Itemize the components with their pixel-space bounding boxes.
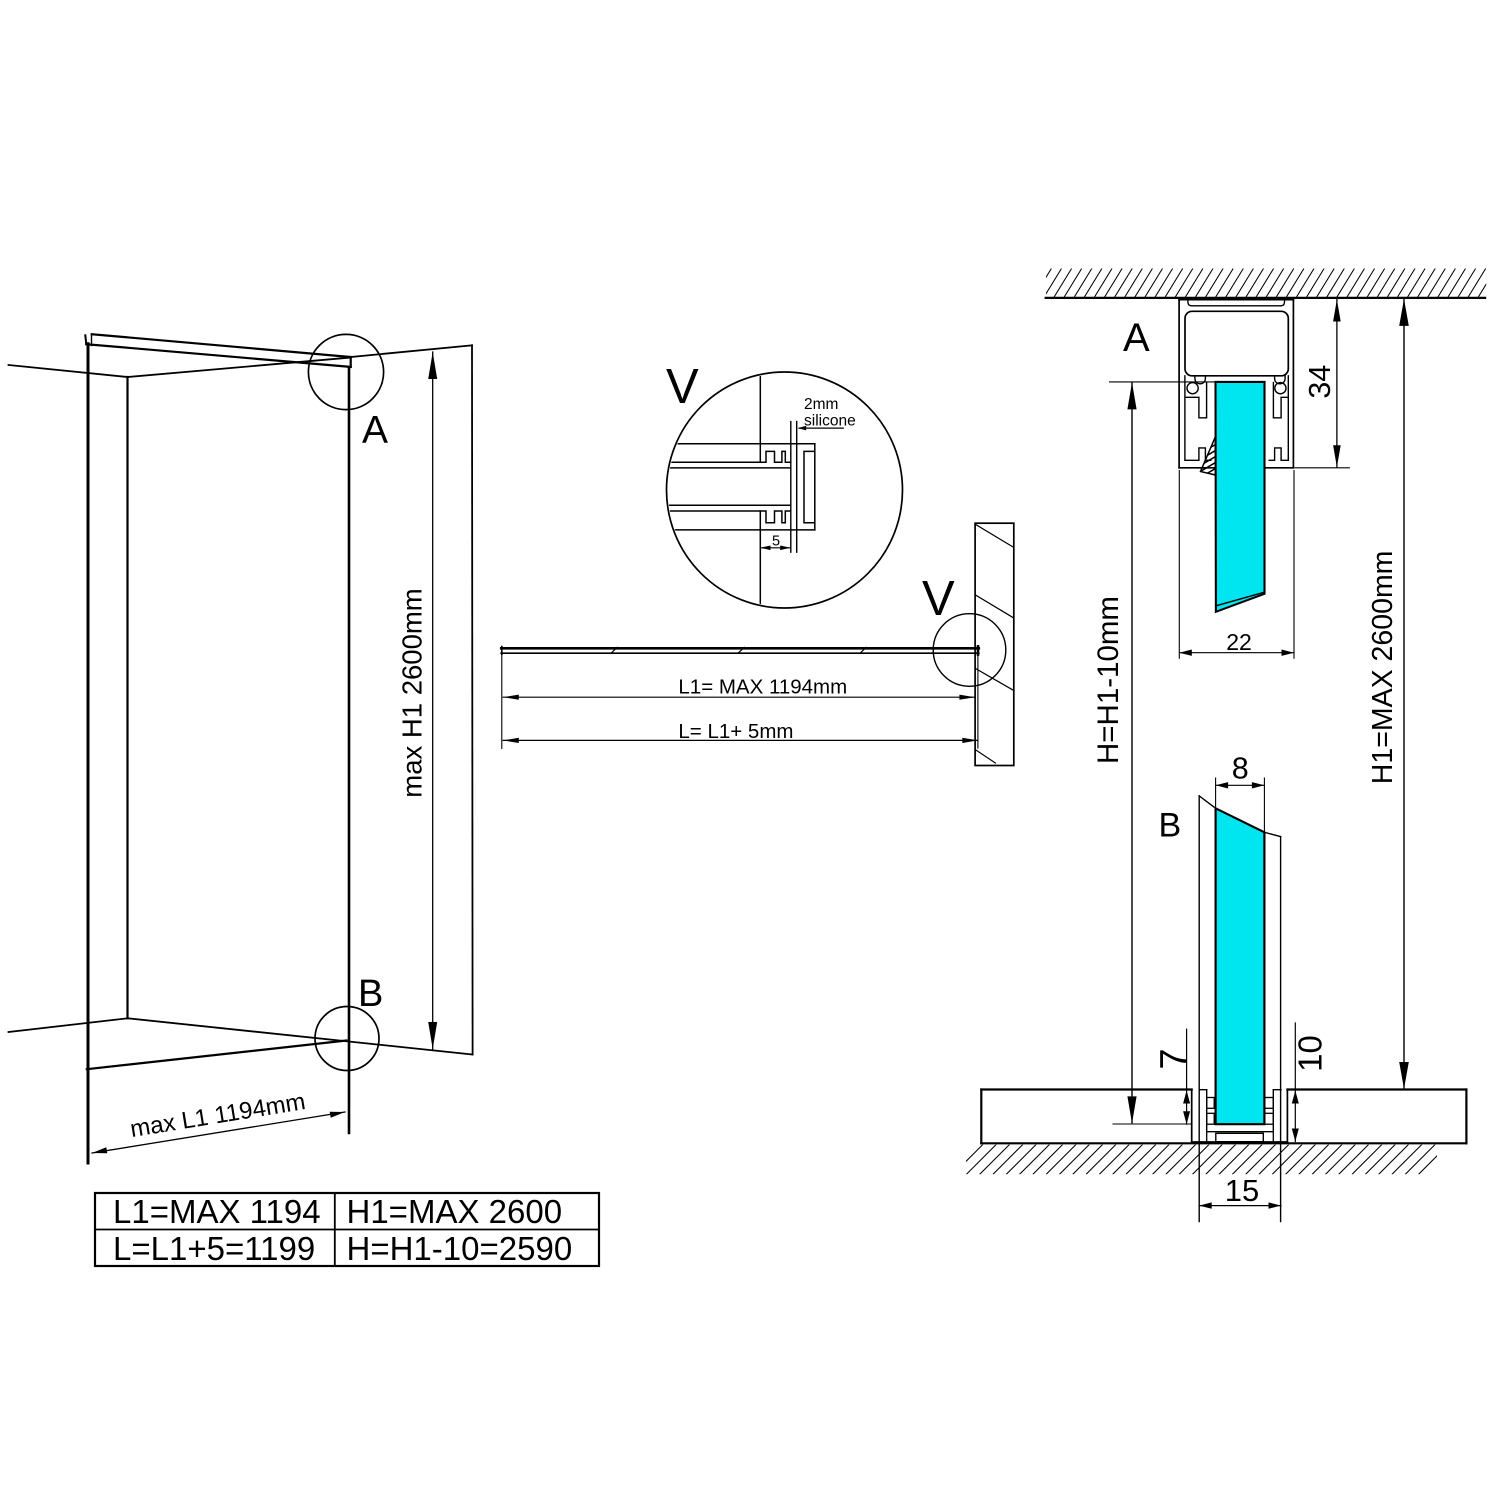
svg-text:15: 15 xyxy=(1225,1173,1259,1208)
svg-text:L1= MAX 1194mm: L1= MAX 1194mm xyxy=(678,676,847,699)
svg-text:L= L1+ 5mm: L= L1+ 5mm xyxy=(678,720,793,743)
svg-text:V: V xyxy=(666,360,699,414)
svg-text:22: 22 xyxy=(1226,629,1252,655)
svg-text:A: A xyxy=(1123,316,1150,360)
svg-text:L1=MAX 1194: L1=MAX 1194 xyxy=(113,1193,321,1230)
svg-text:2mm: 2mm xyxy=(804,396,838,413)
svg-text:L=L1+5=1199: L=L1+5=1199 xyxy=(113,1230,315,1267)
svg-text:5: 5 xyxy=(772,534,780,550)
svg-text:A: A xyxy=(362,409,388,452)
svg-text:H=H1-10mm: H=H1-10mm xyxy=(1092,596,1125,764)
svg-text:8: 8 xyxy=(1232,751,1249,785)
svg-text:H1=MAX 2600: H1=MAX 2600 xyxy=(347,1193,563,1230)
svg-text:B: B xyxy=(1159,807,1182,845)
svg-text:H=H1-10=2590: H=H1-10=2590 xyxy=(347,1230,573,1267)
svg-text:silicone: silicone xyxy=(804,413,856,430)
svg-text:10: 10 xyxy=(1292,1035,1329,1072)
svg-text:V: V xyxy=(922,572,955,626)
svg-text:34: 34 xyxy=(1303,365,1337,399)
svg-text:7: 7 xyxy=(1154,1048,1196,1069)
svg-text:B: B xyxy=(358,973,383,1015)
svg-text:H1=MAX 2600mm: H1=MAX 2600mm xyxy=(1367,551,1399,785)
svg-text:max H1 2600mm: max H1 2600mm xyxy=(397,588,428,797)
